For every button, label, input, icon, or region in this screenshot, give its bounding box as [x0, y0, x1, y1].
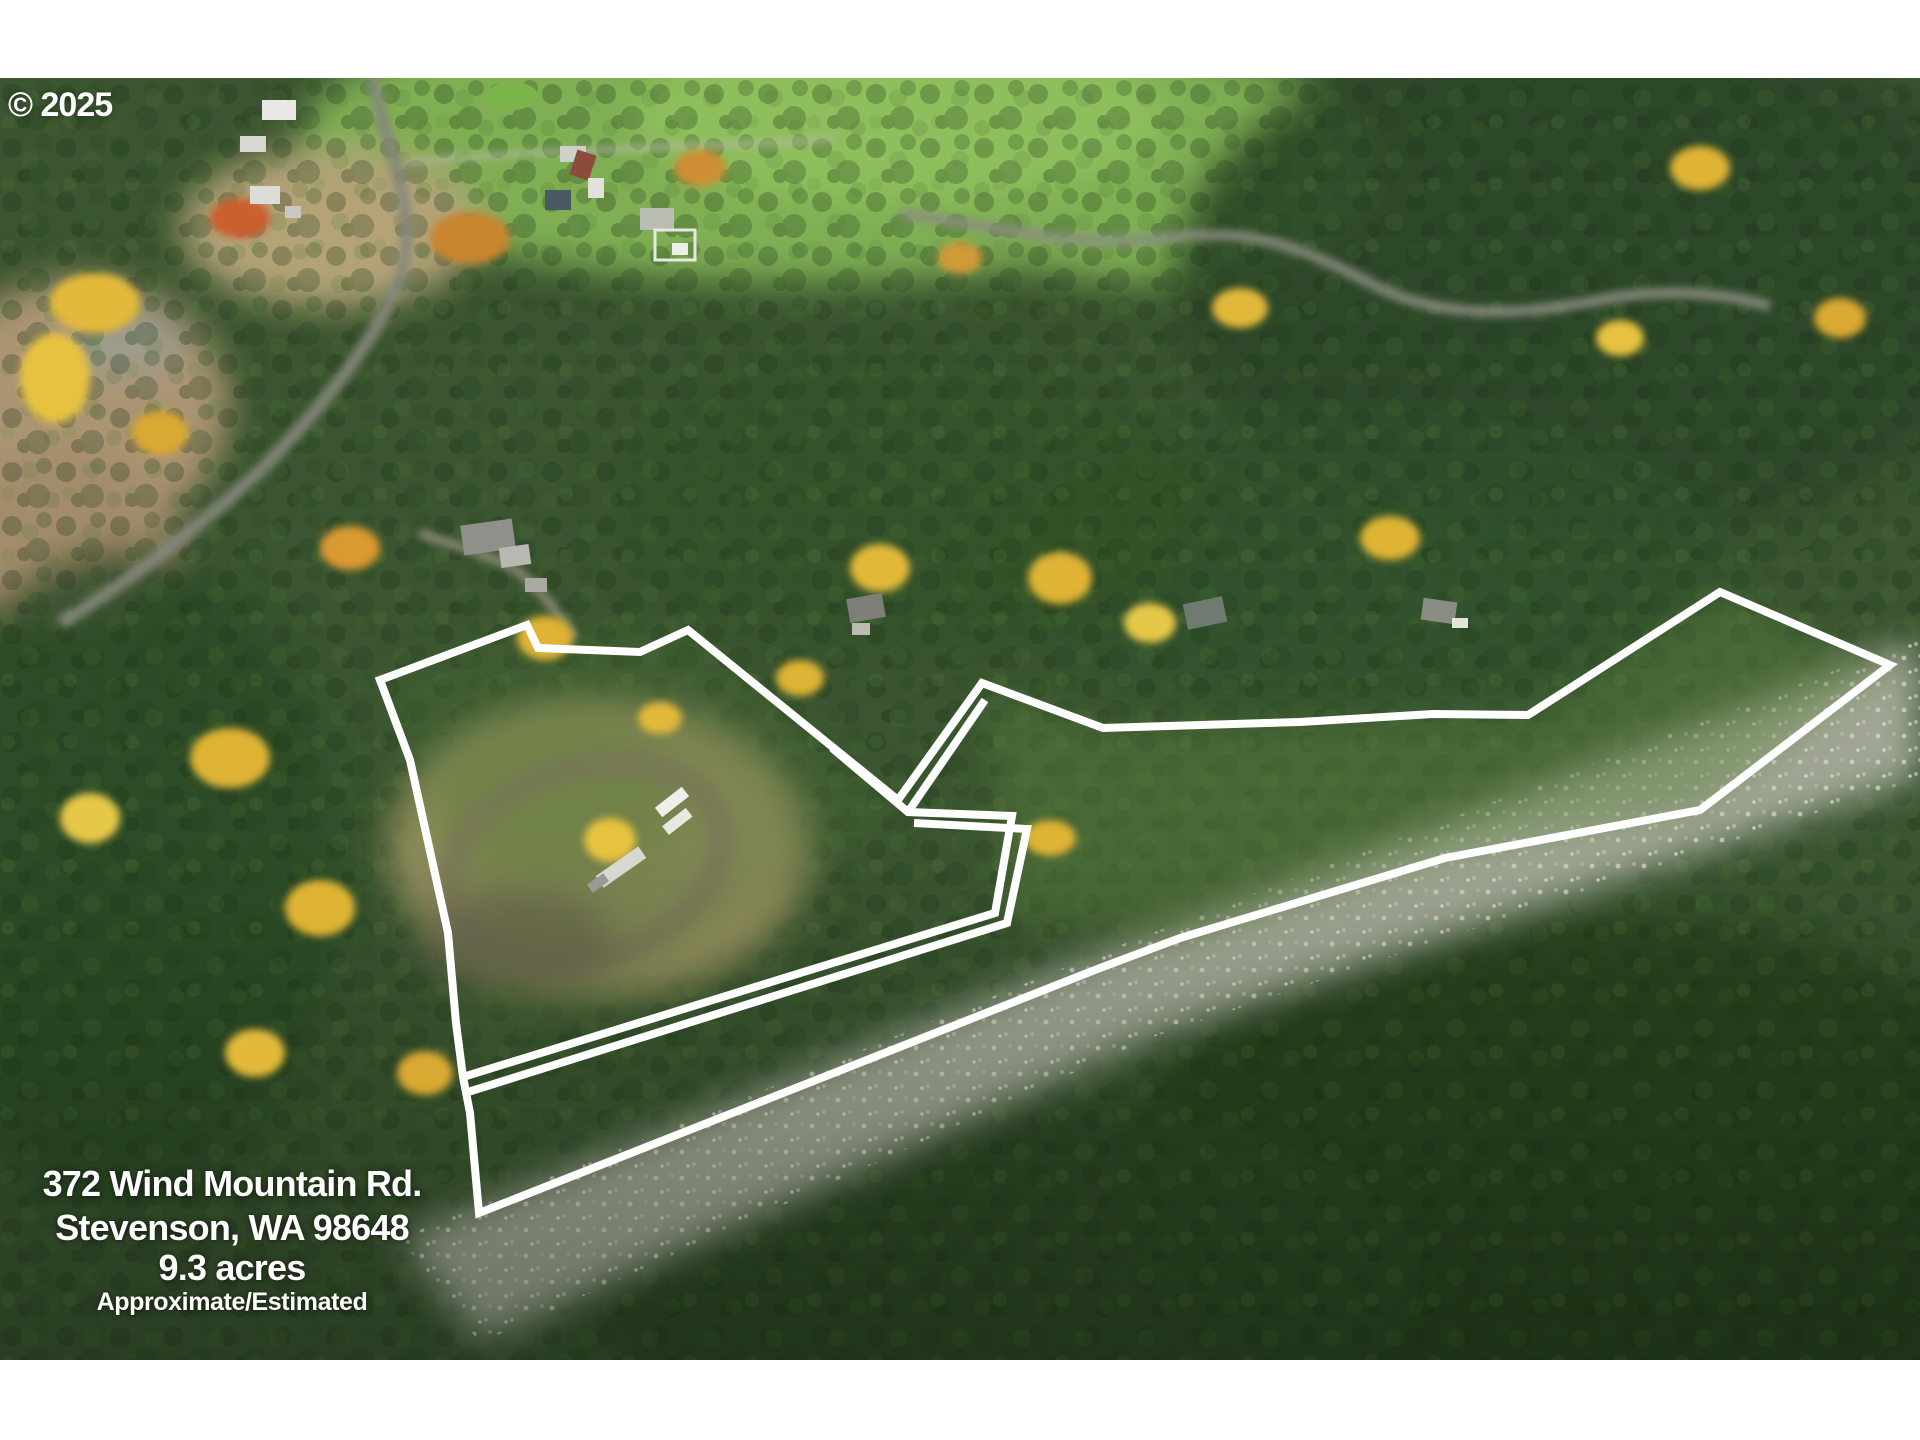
address-line-1: 372 Wind Mountain Rd.	[12, 1160, 452, 1207]
aerial-photo: © 2025 372 Wind Mountain Rd. Stevenson, …	[0, 78, 1920, 1360]
disclaimer-line: Approximate/Estimated	[12, 1287, 452, 1317]
screenshot-root: © 2025 372 Wind Mountain Rd. Stevenson, …	[0, 0, 1920, 1440]
letterbox-bottom	[0, 1360, 1920, 1440]
address-line-2: Stevenson, WA 98648	[12, 1207, 452, 1248]
letterbox-top	[0, 0, 1920, 78]
copyright-watermark: © 2025	[8, 86, 112, 125]
acreage-line: 9.3 acres	[12, 1248, 452, 1287]
address-overlay: 372 Wind Mountain Rd. Stevenson, WA 9864…	[12, 1160, 452, 1317]
